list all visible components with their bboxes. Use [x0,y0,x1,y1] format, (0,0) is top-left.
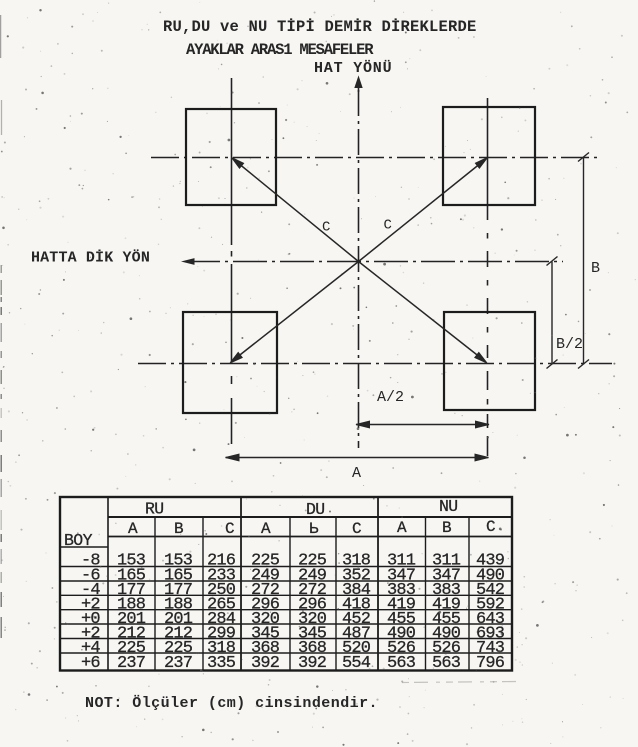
svg-text:C: C [486,518,496,536]
svg-text:A: A [261,520,271,538]
svg-text:A: A [128,520,138,538]
svg-text:RU,DU ve NU TİPİ DEMİR DİREKLE: RU,DU ve NU TİPİ DEMİR DİREKLERDE [163,18,477,36]
svg-text:335: 335 [207,654,236,673]
svg-text:A/2: A/2 [377,389,404,406]
svg-text:796: 796 [476,654,505,673]
svg-text:NOT: Ölçüler (cm) cinsindendir: NOT: Ölçüler (cm) cinsindendir. [85,695,378,712]
svg-text:563: 563 [387,654,416,673]
svg-text:Ь: Ь [309,520,319,538]
svg-text:RU: RU [145,500,164,519]
svg-text:C: C [384,218,392,234]
svg-text:HAT YÖNÜ: HAT YÖNÜ [314,60,392,77]
svg-text:237: 237 [117,654,145,673]
svg-text:C: C [225,520,235,538]
svg-text:HATTA DİK YÖN: HATTA DİK YÖN [31,250,150,267]
svg-text:B: B [174,520,184,538]
svg-text:392: 392 [298,654,326,673]
svg-text:237: 237 [164,654,192,673]
svg-text:A: A [352,465,361,482]
svg-text:AYAKLAR ARAS1 MESAFELER: AYAKLAR ARAS1 MESAFELER [186,41,374,59]
svg-text:C: C [322,220,330,236]
svg-text:A: A [397,519,407,537]
svg-text:B/2: B/2 [556,336,583,353]
svg-text:DU: DU [306,500,325,519]
svg-text:563: 563 [432,654,461,673]
svg-text:554: 554 [342,654,371,673]
svg-text:B: B [591,260,600,277]
svg-text:392: 392 [251,654,279,673]
svg-text:C: C [352,520,362,538]
svg-text:B: B [442,519,452,537]
svg-text:+6: +6 [81,654,100,673]
svg-text:NU: NU [439,497,458,516]
